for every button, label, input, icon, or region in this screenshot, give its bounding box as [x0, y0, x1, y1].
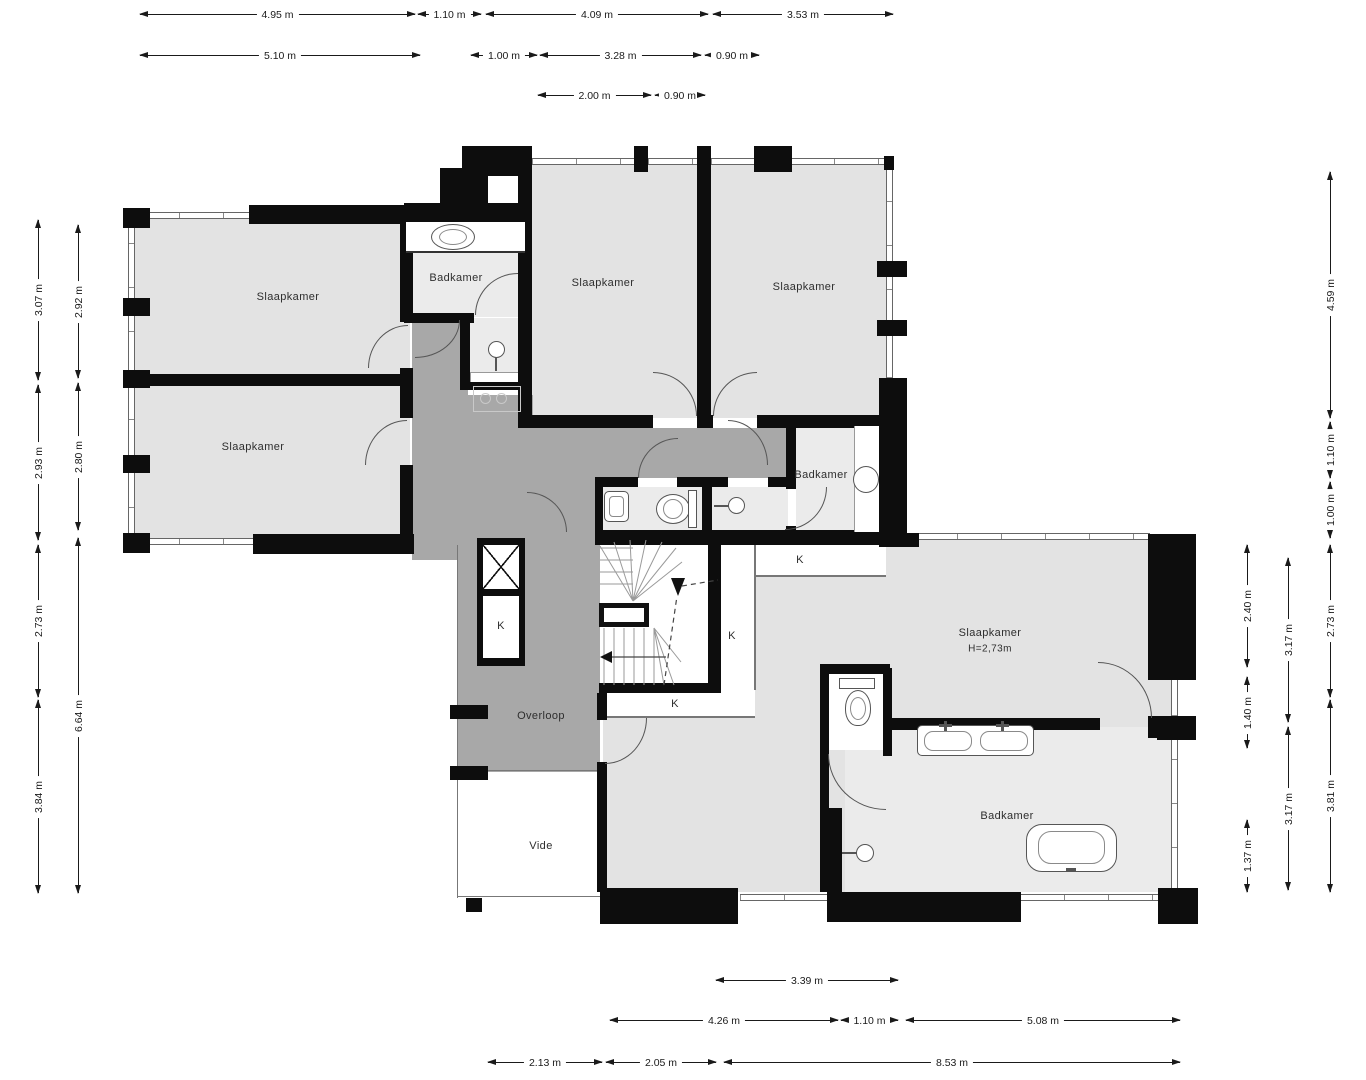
dimension: 2.40 m — [1241, 545, 1254, 667]
dimension: 1.00 m — [471, 49, 537, 62]
dimension: 2.13 m — [488, 1056, 602, 1069]
wall — [883, 668, 892, 756]
toilet-tank — [688, 490, 697, 528]
dimension-label: 1.10 m — [848, 1015, 890, 1027]
dimension: 2.93 m — [32, 385, 45, 540]
dimension: 3.17 m — [1282, 727, 1295, 890]
stair-opening — [599, 603, 649, 627]
dimension-label: 0.90 m — [711, 50, 753, 62]
boundary-line — [754, 540, 756, 690]
sink-basin-inner — [439, 229, 467, 245]
shower-head — [488, 341, 505, 358]
wall — [820, 808, 842, 892]
dimension-label: 4.59 m — [1325, 274, 1337, 316]
wall — [879, 378, 907, 545]
dimension-label: 3.81 m — [1325, 775, 1337, 817]
hallway — [412, 395, 533, 560]
window-wall — [740, 894, 828, 901]
dimension: 4.26 m — [610, 1014, 838, 1027]
dimension: 2.73 m — [32, 545, 45, 697]
closet-label-k: K — [497, 620, 505, 632]
dimension-label: 2.73 m — [1325, 600, 1337, 642]
wall — [702, 477, 712, 537]
shower-head — [856, 844, 874, 862]
wall — [460, 316, 470, 386]
window-wall — [648, 158, 697, 165]
wall-post — [123, 533, 150, 553]
room-label-badkamer-mid: Badkamer — [794, 469, 847, 481]
wall — [820, 664, 829, 812]
dimension-label: 4.26 m — [703, 1015, 745, 1027]
dimension: 1.00 m — [1324, 482, 1337, 538]
dimension: 0.90 m — [655, 89, 705, 102]
dimension-label: 4.09 m — [576, 9, 618, 21]
dimension: 1.10 m — [418, 8, 481, 21]
dimension: 2.05 m — [606, 1056, 716, 1069]
shower-stem — [495, 357, 497, 371]
wall — [697, 415, 713, 428]
wall-post — [877, 261, 907, 277]
closet-label-k: K — [671, 698, 679, 710]
room-label-ceiling-height: H=2,73m — [968, 644, 1012, 655]
wall-post — [466, 898, 482, 912]
dimension-label: 1.00 m — [483, 50, 525, 62]
dimension: 4.59 m — [1324, 172, 1337, 418]
dimension: 3.17 m — [1282, 558, 1295, 722]
dimension: 3.07 m — [32, 220, 45, 380]
bathtub-inner — [1038, 831, 1105, 864]
dimension-label: 2.80 m — [73, 435, 85, 477]
dimension: 3.81 m — [1324, 700, 1337, 892]
dimension-label: 1.37 m — [1242, 835, 1254, 877]
dimension: 1.37 m — [1241, 820, 1254, 892]
room-label-vide: Vide — [529, 840, 552, 852]
dimension-label: 3.39 m — [786, 975, 828, 987]
closet-label-k: K — [796, 554, 804, 566]
dimension: 6.64 m — [72, 538, 85, 893]
dimension: 2.00 m — [538, 89, 651, 102]
dimension-label: 1.10 m — [1325, 429, 1337, 471]
dimension-label: 2.13 m — [524, 1057, 566, 1069]
washer-dial — [480, 393, 491, 404]
wall — [128, 374, 412, 386]
wall — [440, 168, 488, 206]
dimension: 2.73 m — [1324, 545, 1337, 697]
window-wall — [1171, 680, 1178, 892]
dimension: 4.09 m — [486, 8, 708, 21]
dimension: 3.28 m — [540, 49, 701, 62]
floorplan: Slaapkamer Slaapkamer Badkamer Slaapkame… — [0, 0, 1366, 1080]
washer — [473, 386, 521, 412]
dimension: 0.90 m — [705, 49, 759, 62]
wall-post — [123, 298, 150, 316]
dimension-label: 2.05 m — [640, 1057, 682, 1069]
dimension-label: 0.90 m — [659, 90, 701, 102]
dimension-label: 1.40 m — [1242, 691, 1254, 733]
wall-post — [884, 156, 894, 170]
dimension: 1.40 m — [1241, 677, 1254, 748]
vanity-sink — [980, 731, 1028, 751]
wall-post — [754, 146, 792, 172]
room-label-slaapkamer-l: Slaapkamer — [222, 441, 285, 453]
shaft-box — [483, 545, 519, 589]
dimension-label: 1.10 m — [428, 9, 470, 21]
window-wall — [135, 212, 251, 219]
room-label-slaapkamer-tm: Slaapkamer — [572, 277, 635, 289]
shower-head — [728, 497, 745, 514]
dimension: 3.39 m — [716, 974, 898, 987]
wall — [597, 693, 607, 720]
toilet-inner — [850, 697, 866, 720]
wall — [404, 203, 528, 223]
room-label-overloop: Overloop — [517, 710, 565, 722]
wall — [1148, 716, 1196, 738]
wall-post — [123, 208, 150, 228]
washer-dial — [496, 393, 507, 404]
window-wall — [135, 538, 255, 545]
boundary-line — [457, 545, 458, 898]
closet-label-k: K — [728, 630, 736, 642]
wall — [249, 205, 410, 224]
wall — [597, 762, 607, 892]
wall — [1148, 534, 1196, 680]
dimension-label: 2.73 m — [33, 600, 45, 642]
wall — [879, 533, 919, 547]
wall — [820, 664, 890, 674]
faucet — [1001, 721, 1004, 731]
wall — [827, 892, 1021, 922]
dimension-label: 8.53 m — [931, 1057, 973, 1069]
wall — [400, 368, 413, 418]
dimension-label: 2.40 m — [1242, 585, 1254, 627]
room-label-slaapkamer-tl: Slaapkamer — [257, 291, 320, 303]
dimension-label: 3.84 m — [33, 775, 45, 817]
wall-post — [1158, 888, 1198, 924]
sink-inner — [609, 496, 624, 517]
dimension-label: 4.95 m — [256, 9, 298, 21]
window-wall — [913, 533, 1150, 540]
window-wall — [790, 158, 886, 165]
dimension-label: 3.28 m — [599, 50, 641, 62]
wall-post — [123, 455, 150, 473]
toilet-inner — [663, 499, 683, 519]
dimension-label: 1.00 m — [1325, 489, 1337, 531]
wall — [518, 146, 532, 422]
dimension-label: 6.64 m — [73, 694, 85, 736]
wall — [697, 146, 711, 418]
room-shower-mid — [712, 487, 788, 532]
dimension: 3.53 m — [713, 8, 893, 21]
dimension-label: 3.17 m — [1283, 619, 1295, 661]
wall — [253, 534, 414, 554]
room-label-badkamer-top: Badkamer — [429, 272, 482, 284]
wall-stub — [450, 766, 488, 780]
window-wall — [1020, 894, 1162, 901]
dimension-label: 2.92 m — [73, 280, 85, 322]
dimension-label: 2.93 m — [33, 441, 45, 483]
toilet-tank — [839, 678, 875, 689]
dimension: 4.95 m — [140, 8, 415, 21]
wall-stub — [450, 705, 488, 719]
window-wall — [532, 158, 634, 165]
room-label-badkamer-main: Badkamer — [980, 810, 1033, 822]
sink-basin — [853, 466, 879, 493]
boundary-line — [457, 896, 603, 897]
wall-post — [634, 146, 648, 172]
window-wall — [711, 158, 756, 165]
dimension-label: 5.10 m — [259, 50, 301, 62]
wall — [518, 415, 653, 428]
room-label-slaapkamer-main: Slaapkamer — [959, 627, 1022, 639]
dimension: 8.53 m — [724, 1056, 1180, 1069]
dimension-label: 3.17 m — [1283, 787, 1295, 829]
wall-post — [877, 320, 907, 336]
wall — [600, 888, 738, 924]
dimension-label: 2.00 m — [573, 90, 615, 102]
dimension-label: 3.07 m — [33, 279, 45, 321]
boundary-line — [755, 575, 886, 577]
bathtub-faucet — [1066, 868, 1076, 872]
dimension-label: 5.08 m — [1022, 1015, 1064, 1027]
wall — [768, 477, 796, 487]
vanity-sink — [924, 731, 972, 751]
dimension: 5.08 m — [906, 1014, 1180, 1027]
dimension: 5.10 m — [140, 49, 420, 62]
dimension: 3.84 m — [32, 700, 45, 893]
wall — [400, 465, 413, 545]
dimension: 2.92 m — [72, 225, 85, 378]
dimension: 1.10 m — [1324, 422, 1337, 478]
room-label-slaapkamer-tr: Slaapkamer — [773, 281, 836, 293]
dimension-label: 3.53 m — [782, 9, 824, 21]
dimension: 1.10 m — [841, 1014, 898, 1027]
faucet — [944, 721, 947, 731]
wall — [595, 477, 603, 537]
dimension: 2.80 m — [72, 383, 85, 530]
